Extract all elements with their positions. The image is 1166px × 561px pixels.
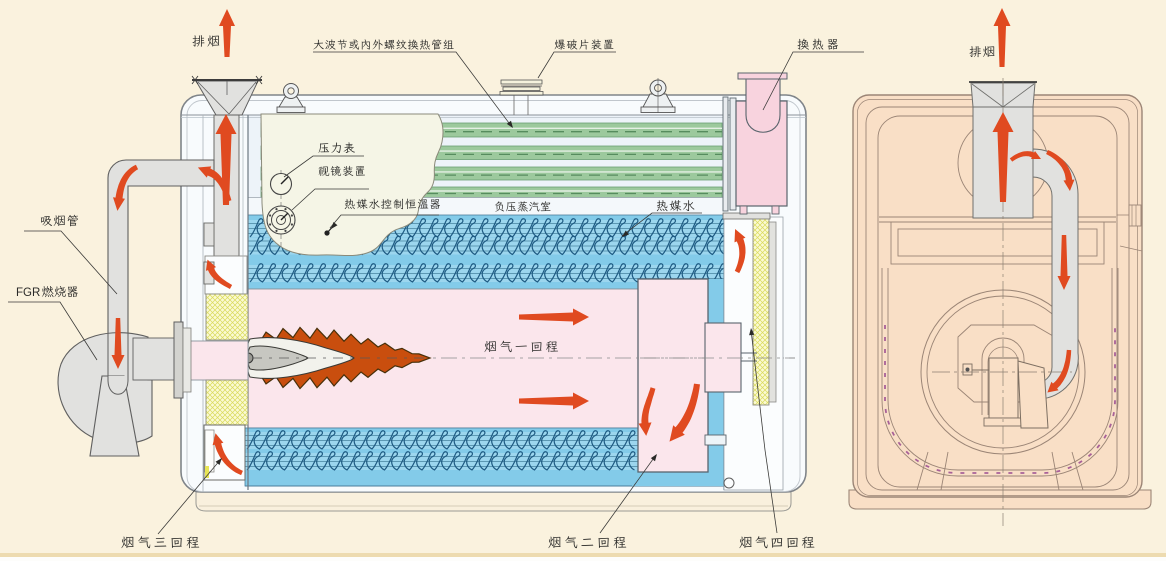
svg-text:FGR: FGR bbox=[16, 287, 40, 299]
